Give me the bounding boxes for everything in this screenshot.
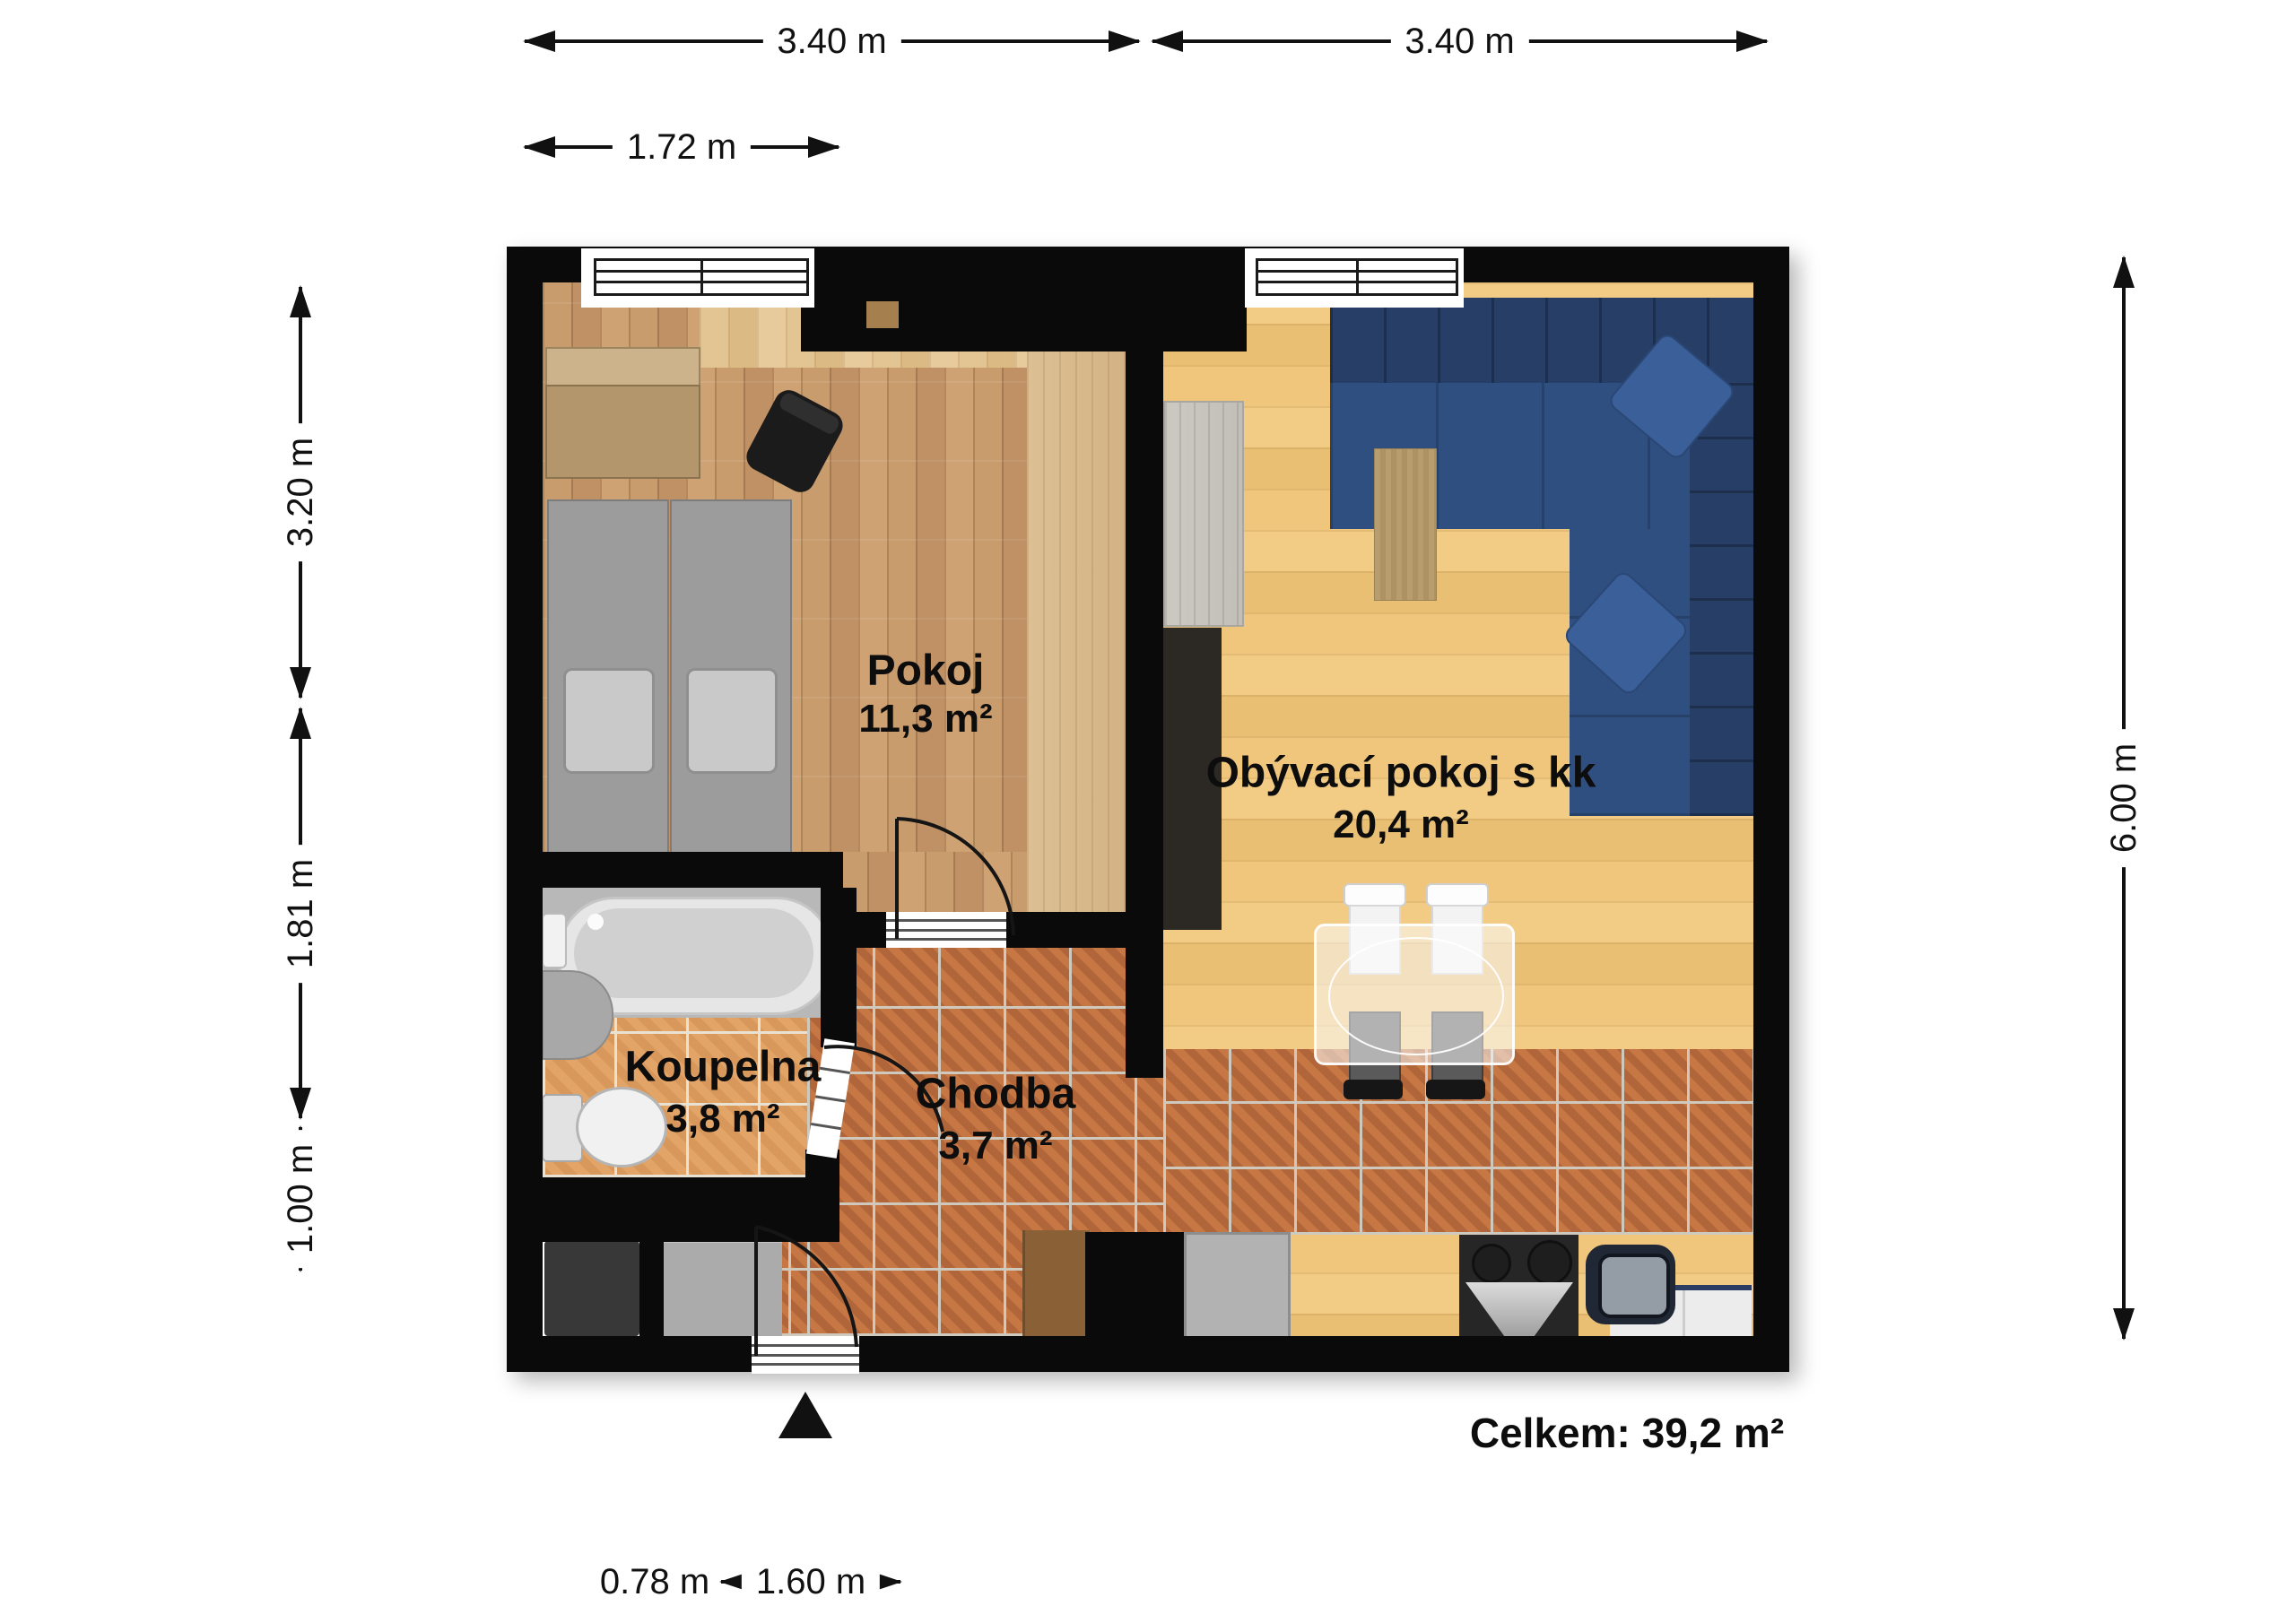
dim-window-width: 1.72 m xyxy=(525,129,839,165)
dim-label: 3.40 m xyxy=(762,22,900,61)
arrow-left-icon xyxy=(523,30,555,52)
dim-label: 6.00 m xyxy=(2104,729,2144,867)
arrow-right-icon xyxy=(808,136,840,158)
entrance-marker-triangle xyxy=(778,1392,832,1438)
dim-top-width-right: 3.40 m xyxy=(1152,23,1767,59)
dim-right-height: 6.00 m xyxy=(2106,257,2142,1339)
bedroom-door-arc xyxy=(897,819,1013,935)
dim-top-width-left: 3.40 m xyxy=(525,23,1139,59)
entrance-door-arc xyxy=(756,1227,857,1347)
room-area-living: 20,4 m² xyxy=(1333,803,1469,847)
room-label-bathroom: Koupelna xyxy=(625,1043,822,1092)
dim-label: 1.00 m xyxy=(281,1130,320,1268)
dim-label: 3.20 m xyxy=(281,423,320,561)
dim-bottom-nook: 0.78 m xyxy=(592,1564,717,1600)
room-label-bedroom: Pokoj xyxy=(867,647,985,696)
arrow-right-icon xyxy=(1736,30,1769,52)
arrow-left-icon xyxy=(1151,30,1183,52)
dim-left-lower: 1.00 m xyxy=(283,1127,318,1271)
floor-plan: Pokoj 11,3 m² Obývací pokoj s kk 20,4 m²… xyxy=(0,0,2296,1623)
dim-label: 0.78 m xyxy=(586,1562,724,1601)
total-area-label: Celkem: 39,2 m² xyxy=(1470,1409,1784,1457)
room-area-hallway: 3,7 m² xyxy=(938,1124,1052,1168)
arrow-down-icon xyxy=(290,667,311,699)
arrow-right-icon xyxy=(1109,30,1141,52)
room-label-hallway: Chodba xyxy=(916,1070,1076,1119)
dim-label: 1.72 m xyxy=(613,127,751,167)
door-swing-arcs xyxy=(0,0,2296,1623)
arrow-left-icon xyxy=(523,136,555,158)
arrow-up-icon xyxy=(2113,256,2135,288)
dim-label: 3.40 m xyxy=(1390,22,1528,61)
room-label-living: Obývací pokoj s kk xyxy=(1206,749,1596,798)
arrow-up-icon xyxy=(290,285,311,317)
arrow-down-icon xyxy=(290,1088,311,1120)
dim-label: 1.81 m xyxy=(281,844,320,982)
room-area-bedroom: 11,3 m² xyxy=(858,697,992,742)
arrow-down-icon xyxy=(2113,1308,2135,1341)
dim-left-middle: 1.81 m xyxy=(283,708,318,1118)
room-area-bathroom: 3,8 m² xyxy=(665,1097,779,1141)
arrow-up-icon xyxy=(290,707,311,739)
dim-bottom-door: 1.60 m xyxy=(721,1564,900,1600)
dim-label: 1.60 m xyxy=(742,1562,880,1601)
dim-left-upper: 3.20 m xyxy=(283,287,318,698)
